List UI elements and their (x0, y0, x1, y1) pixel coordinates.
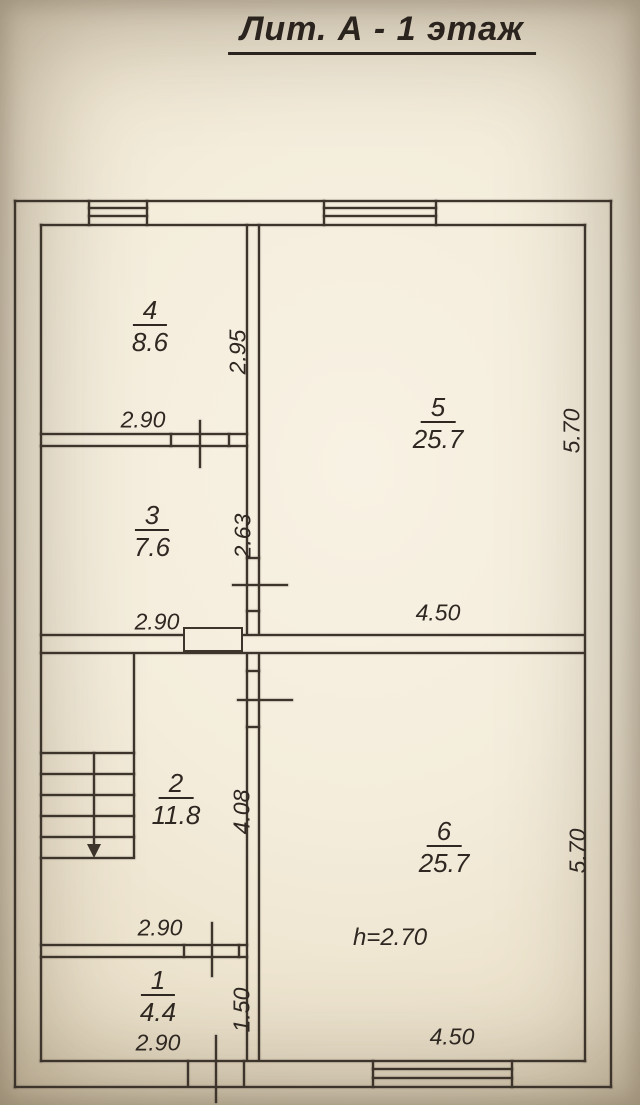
dim-room1-width: 2.90 (136, 1030, 181, 1057)
inner-wall-bottom-line (40, 1060, 586, 1062)
room-area: 25.7 (413, 425, 464, 453)
door-jamb-line (246, 610, 260, 612)
room3-label: 3 7.6 (134, 501, 170, 561)
stair-step-line (40, 815, 135, 817)
stair-direction-line (93, 752, 95, 846)
room-number: 5 (421, 393, 455, 423)
door-jamb-line (246, 726, 260, 728)
wall-line (246, 224, 248, 634)
wall-line (40, 944, 248, 946)
wall-line (40, 445, 248, 447)
room2-label: 2 11.8 (152, 769, 201, 829)
window-glass-line (88, 207, 148, 209)
room4-label: 4 8.6 (132, 296, 168, 356)
dim-room5-width: 4.50 (416, 600, 461, 627)
door-jamb-line (170, 433, 172, 447)
window-frame-line (146, 200, 148, 226)
window-frame-line (435, 200, 437, 226)
window-frame-line (372, 1060, 374, 1088)
window-glass-line (323, 207, 437, 209)
ceiling-height-note: h=2.70 (353, 924, 427, 952)
door-tick (199, 420, 201, 468)
room-area: 25.7 (419, 849, 470, 877)
door-jamb-line (187, 1060, 189, 1086)
room-number: 1 (141, 966, 175, 996)
window-glass-line (88, 215, 148, 217)
outer-wall-left-line (14, 200, 16, 1088)
dim-room6-depth: 5.70 (565, 829, 592, 874)
window-frame-line (511, 1060, 513, 1088)
inner-wall-top-line (40, 224, 586, 226)
stair-down-arrow-icon (87, 844, 101, 858)
dim-room2-width: 2.90 (138, 915, 183, 942)
door-tick (215, 1035, 217, 1103)
dim-room4-width: 2.90 (121, 407, 166, 434)
wall-line (40, 956, 248, 958)
stair-step-line (40, 752, 135, 754)
room-area: 8.6 (132, 328, 168, 356)
room-number: 6 (427, 817, 461, 847)
dim-room3-width: 2.90 (135, 609, 180, 636)
inner-wall-left-line (40, 224, 42, 1062)
door-tick (237, 699, 293, 701)
room6-label: 6 25.7 (419, 817, 470, 877)
room-number: 3 (135, 501, 169, 531)
dim-room1-depth: 1.50 (229, 988, 256, 1033)
room5-label: 5 25.7 (413, 393, 464, 453)
room1-label: 1 4.4 (140, 966, 176, 1026)
window-glass-line (372, 1068, 513, 1070)
dim-room6-width: 4.50 (430, 1024, 475, 1051)
dim-room5-depth: 5.70 (559, 409, 586, 454)
stair-step-line (40, 773, 135, 775)
wall-line (243, 634, 584, 636)
inner-wall-right-line (584, 224, 586, 1062)
wall-pier-block (183, 627, 243, 652)
wall-line (40, 652, 584, 654)
window-frame-line (323, 200, 325, 226)
plan-title: Лит. А - 1 этаж (228, 10, 536, 55)
window-glass-line (323, 215, 437, 217)
door-tick (232, 584, 288, 586)
door-tick (211, 922, 213, 977)
dim-room3-depth: 2.63 (230, 514, 257, 559)
door-jamb-line (228, 433, 230, 447)
wall-line (258, 654, 260, 1060)
window-frame-line (88, 200, 90, 226)
outer-wall-bottom-line (14, 1086, 612, 1088)
room-area: 4.4 (140, 998, 176, 1026)
dim-room4-depth: 2.95 (225, 330, 252, 375)
floor-plan-photo: Лит. А - 1 этаж (0, 0, 640, 1105)
door-jamb-line (246, 670, 260, 672)
room-number: 2 (159, 769, 193, 799)
window-glass-line (372, 1077, 513, 1079)
wall-line (258, 224, 260, 634)
room-area: 7.6 (134, 533, 170, 561)
room-area: 11.8 (152, 801, 201, 829)
stair-step-line (40, 836, 135, 838)
stair-step-line (40, 794, 135, 796)
door-jamb-line (238, 944, 240, 958)
door-jamb-line (183, 944, 185, 958)
outer-wall-right-line (610, 200, 612, 1088)
door-jamb-line (243, 1060, 245, 1086)
dim-room2-depth: 4.08 (229, 790, 256, 835)
outer-wall-top-line (14, 200, 612, 202)
stair-enclosure-line (133, 654, 135, 857)
room-number: 4 (133, 296, 167, 326)
